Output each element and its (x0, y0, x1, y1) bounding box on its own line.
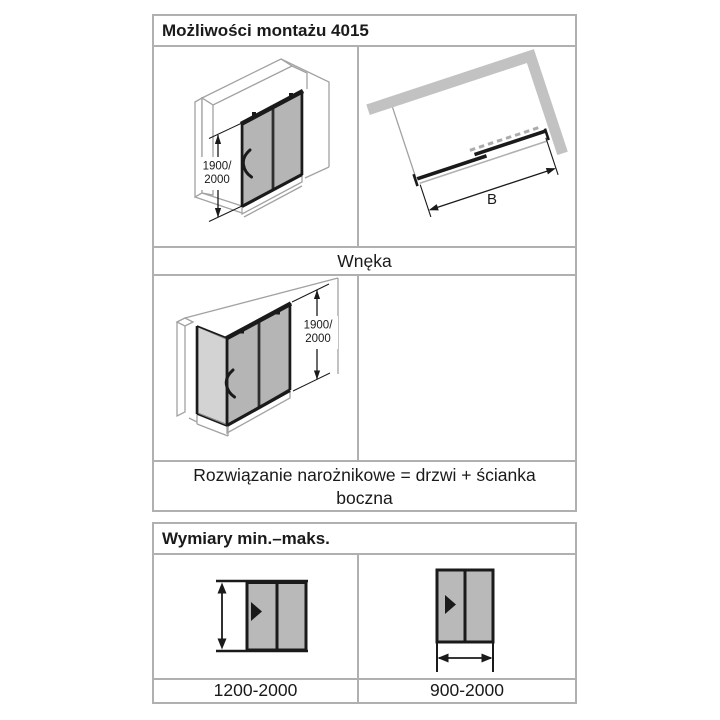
height-dimension-label-2: 2000 (305, 333, 331, 345)
width-dimension-label: B (487, 191, 497, 208)
width-range-pictogram (359, 555, 575, 678)
horizontal-range-arrow-icon (438, 654, 493, 663)
height-range-pictogram (154, 555, 357, 678)
sliding-door (226, 303, 291, 426)
corner-drawings-row: 1900/ 2000 (154, 276, 575, 462)
corner-caption-text: Rozwiązanie narożnikowe = drzwi + ściank… (180, 464, 550, 510)
back-wall (366, 52, 527, 115)
niche-caption: Wnęka (154, 248, 575, 276)
empty-cell (359, 276, 575, 460)
height-dimension-label-1: 1900/ (304, 320, 334, 332)
range-values-row: 1200-2000 900-2000 (154, 680, 575, 702)
corner-isometric-drawing: 1900/ 2000 (154, 276, 357, 460)
dimensions-table-title: Wymiary min.–maks. (154, 524, 575, 555)
height-dimension: 1900/ 2000 (292, 284, 338, 391)
niche-plan-cell: B (359, 47, 575, 246)
height-dimension-label-2: 2000 (204, 174, 230, 186)
arrow-up-icon (215, 135, 221, 145)
installation-table-title: Możliwości montażu 4015 (154, 16, 575, 47)
product-sheet-page: { "montaz_table": { "title": "Możliwości… (0, 0, 720, 720)
niche-isometric-cell: 1900/ 2000 (154, 47, 359, 246)
niche-drawings-row: 1900/ 2000 (154, 47, 575, 248)
niche-isometric-drawing: 1900/ 2000 (154, 47, 357, 246)
fixed-panel-line (417, 156, 486, 179)
installation-options-table: Możliwości montażu 4015 (152, 14, 577, 512)
niche-plan-drawing: B (359, 47, 575, 246)
side-panel (197, 326, 227, 426)
left-wall-line (393, 107, 417, 178)
sliding-panel-line (475, 131, 545, 154)
dimensions-table: Wymiary min.–maks. (152, 522, 577, 704)
right-wall (523, 49, 567, 155)
vertical-range-arrow-icon (218, 583, 227, 650)
width-range-pictogram-cell (359, 555, 575, 678)
height-range-pictogram-cell (154, 555, 359, 678)
sliding-door (241, 91, 303, 207)
pictogram-row (154, 555, 575, 680)
plan-view (366, 49, 573, 225)
corner-isometric-cell: 1900/ 2000 (154, 276, 359, 460)
height-dimension-label-1: 1900/ (203, 161, 233, 173)
height-range-value: 1200-2000 (154, 680, 359, 702)
corner-caption: Rozwiązanie narożnikowe = drzwi + ściank… (154, 462, 575, 510)
width-range-value: 900-2000 (359, 680, 575, 702)
